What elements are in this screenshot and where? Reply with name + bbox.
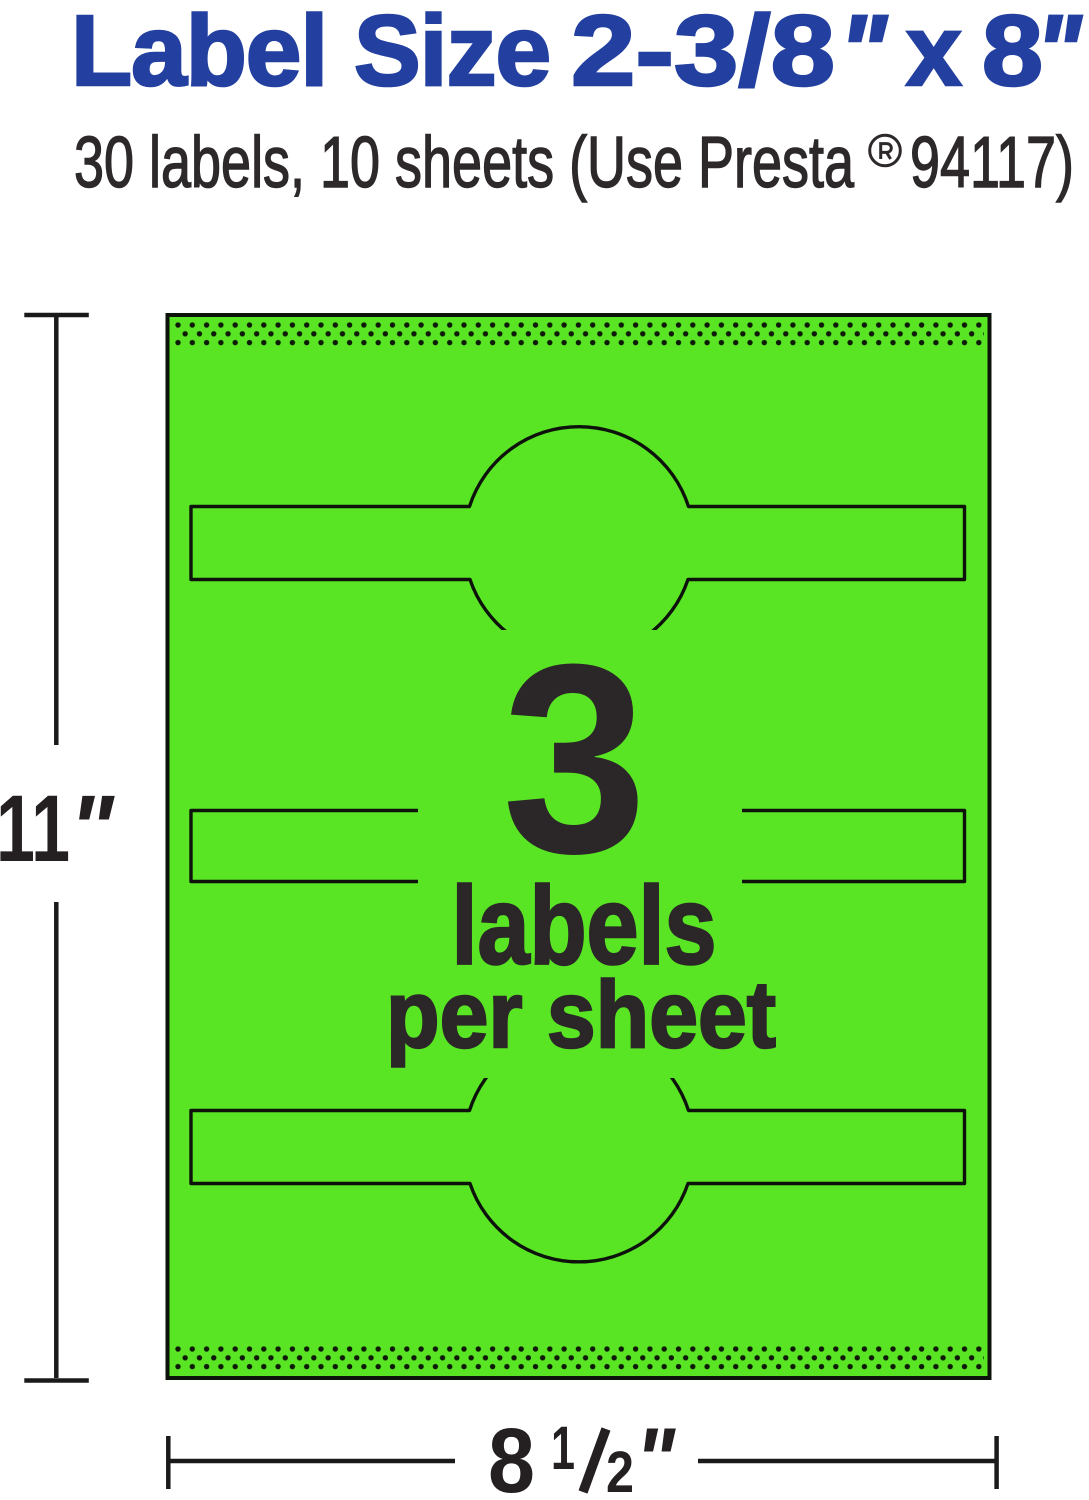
svg-text:per sheet: per sheet (386, 962, 776, 1068)
svg-text:8: 8 (982, 0, 1043, 107)
svg-text:": " (839, 0, 888, 107)
svg-text:2: 2 (606, 1440, 634, 1500)
svg-text:": " (69, 776, 115, 882)
svg-text:2-3/8: 2-3/8 (571, 0, 835, 107)
svg-text:1: 1 (551, 1414, 575, 1482)
svg-text:x: x (906, 0, 962, 107)
svg-text:": " (1036, 0, 1082, 107)
svg-text:11: 11 (0, 776, 70, 882)
svg-text:30 labels, 10 sheets (Use Pres: 30 labels, 10 sheets (Use Presta® 94117) (74, 122, 1074, 203)
svg-text:8: 8 (488, 1410, 535, 1500)
svg-text:Label Size: Label Size (71, 0, 550, 107)
svg-text:": " (635, 1410, 676, 1500)
